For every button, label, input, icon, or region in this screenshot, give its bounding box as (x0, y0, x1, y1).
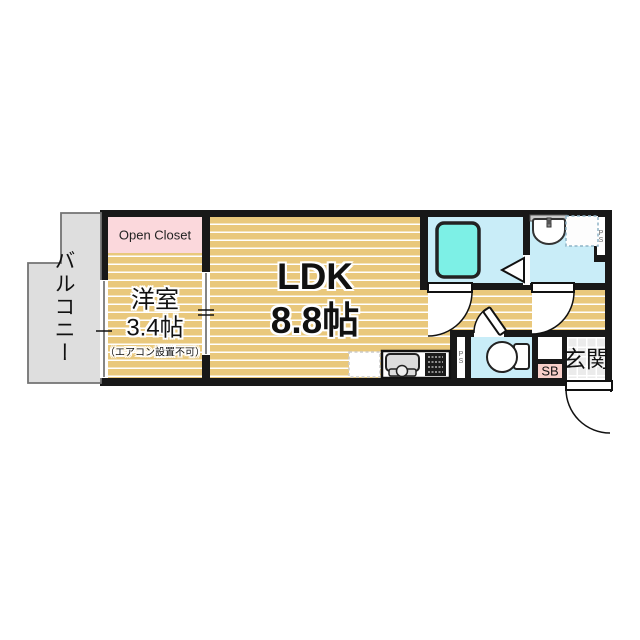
washing-machine-space-icon (566, 216, 598, 246)
kitchen-sink-icon (386, 354, 419, 377)
western-room-size: 3.4帖 (126, 308, 183, 343)
hinged-door-arc-icon (474, 307, 506, 337)
hinged-door-arc-icon (532, 283, 574, 334)
bathroom-folding-door-icon (502, 255, 530, 285)
kitchen-counter (382, 351, 450, 378)
entrance-label: 玄関 (563, 340, 609, 374)
ldk-size: 8.8帖 (271, 290, 359, 344)
entrance-door-arc-icon (566, 381, 612, 433)
wash-basin-icon (530, 215, 567, 244)
bathtub-icon (437, 223, 479, 277)
floorplan-canvas: バルコニー Open Closet 洋室 3.4帖 （エアコン設置不可） LDK… (0, 0, 640, 640)
open-closet-label: Open Closet (119, 228, 191, 243)
western-room-note: （エアコン設置不可） (105, 344, 205, 359)
pipe-space-washroom-label: PS (598, 230, 605, 244)
refrigerator-space-icon (349, 352, 380, 377)
toilet-icon (487, 342, 529, 372)
pipe-space-kitchen-label: PS (458, 351, 465, 365)
balcony-label: バルコニー (48, 250, 78, 365)
gas-stove-icon (425, 353, 446, 376)
shoe-box-label: SB (541, 364, 558, 379)
hinged-door-arc-icon (428, 283, 472, 336)
